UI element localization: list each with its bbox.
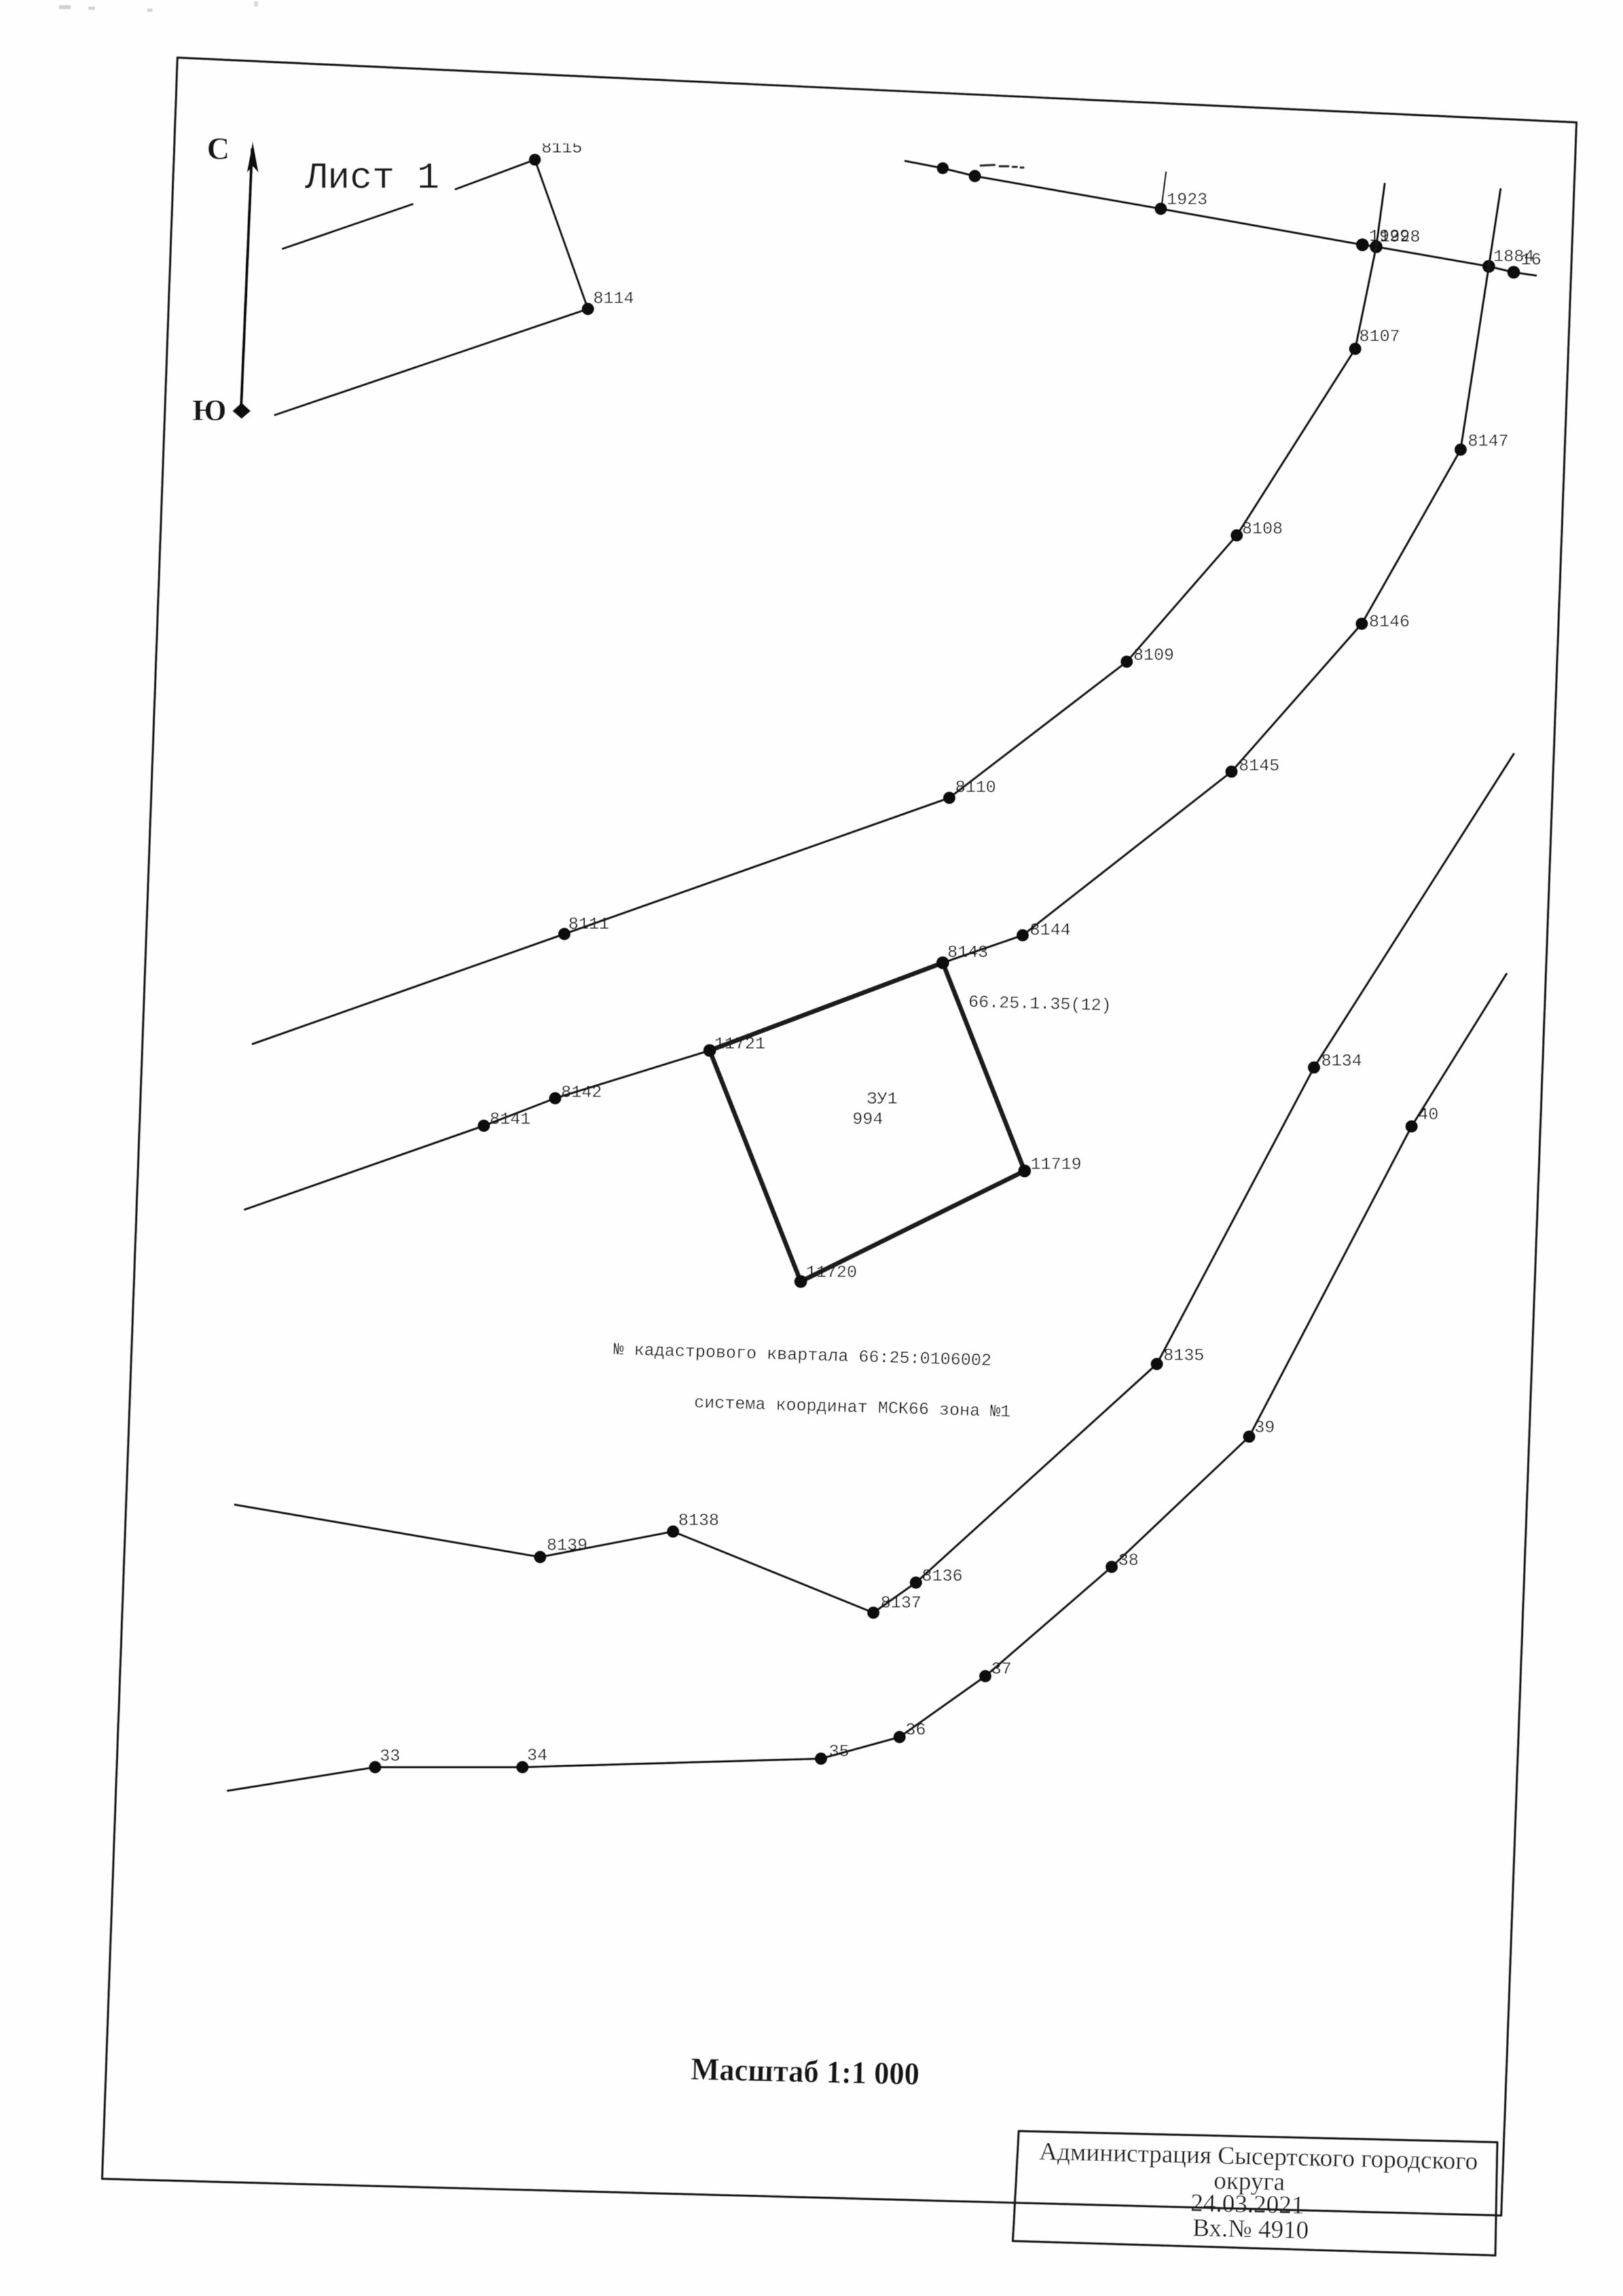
svg-text:8134: 8134 [1321,1051,1362,1071]
svg-text:8146: 8146 [1369,612,1410,632]
svg-text:ЗУ1: ЗУ1 [867,1089,898,1109]
svg-text:8141: 8141 [490,1109,530,1129]
svg-text:8111: 8111 [568,914,609,934]
svg-text:40: 40 [1418,1105,1438,1124]
svg-text:Масштаб 1:1 000: Масштаб 1:1 000 [691,2052,920,2092]
svg-text:8144: 8144 [1030,920,1070,940]
svg-text:8109: 8109 [1133,645,1174,665]
svg-text:1923: 1923 [1167,190,1207,209]
svg-text:33: 33 [380,1746,400,1766]
svg-text:8136: 8136 [922,1566,962,1586]
svg-text:11719: 11719 [1030,1155,1082,1174]
svg-text:8108: 8108 [1242,519,1283,539]
svg-text:С: С [207,132,230,166]
svg-text:37: 37 [991,1659,1012,1679]
svg-text:Вх.№ 4910: Вх.№ 4910 [1192,2214,1309,2244]
svg-text:8142: 8142 [561,1083,602,1102]
svg-text:994: 994 [852,1109,883,1129]
svg-text:36: 36 [905,1720,926,1740]
svg-text:11721: 11721 [714,1034,765,1054]
svg-text:8137: 8137 [881,1593,921,1613]
svg-text:Лист 1: Лист 1 [304,158,439,200]
svg-text:16: 16 [1521,250,1541,270]
svg-text:66.25.1.35(12): 66.25.1.35(12) [968,992,1112,1016]
svg-text:11720: 11720 [806,1263,857,1282]
svg-text:34: 34 [527,1746,547,1765]
svg-text:39: 39 [1254,1418,1275,1437]
svg-text:8143: 8143 [947,942,988,962]
svg-text:35: 35 [829,1742,849,1761]
svg-text:8114: 8114 [593,289,634,308]
svg-text:8145: 8145 [1239,756,1279,776]
svg-text:8110: 8110 [955,778,996,797]
svg-text:8135: 8135 [1163,1346,1204,1365]
svg-text:Ю: Ю [192,393,227,427]
svg-text:8147: 8147 [1468,431,1508,451]
svg-text:1928: 1928 [1379,227,1420,247]
svg-text:8139: 8139 [547,1535,587,1555]
svg-text:8138: 8138 [678,1511,719,1530]
svg-text:8107: 8107 [1359,327,1400,346]
svg-text:38: 38 [1118,1551,1139,1570]
